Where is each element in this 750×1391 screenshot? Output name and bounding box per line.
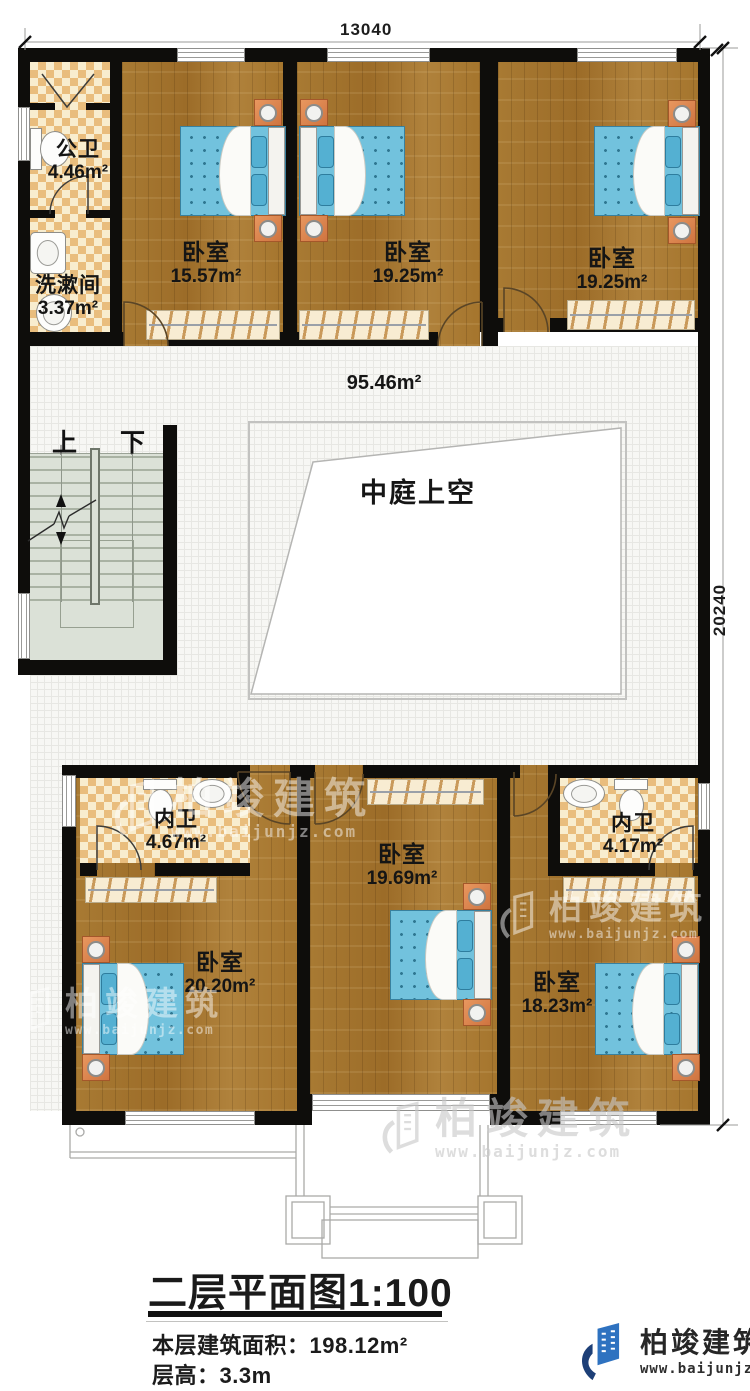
nightstand (82, 1054, 110, 1081)
bed-pillow (101, 973, 117, 1005)
room-area: 15.57m² (171, 266, 242, 287)
title-underline-thin (146, 1321, 448, 1322)
courtyard-name: 中庭上空 (360, 478, 476, 508)
floor-area-label: 本层建筑面积： (152, 1333, 310, 1358)
wall-bed3-stub (498, 318, 504, 332)
bed-pillow (318, 174, 334, 206)
wall-bathbr-bottom-a (548, 863, 655, 876)
room-name: 公卫 (48, 138, 108, 162)
bed-bedroom-br (595, 963, 699, 1055)
room-label-bath-bl: 内卫 4.67m² (146, 808, 206, 853)
room-area: 3.37m² (35, 298, 101, 319)
bed-bedroom1 (180, 126, 286, 216)
wall-bath-bed1 (110, 62, 122, 346)
bed-pillow (664, 973, 680, 1005)
floor-height-value: 3.3m (220, 1363, 272, 1388)
wall-bed2-corridor-stub (482, 332, 498, 346)
bed-pillow (665, 136, 681, 168)
room-label-bedroom-2: 卧室 19.25m² (373, 240, 444, 287)
watermark-url: www.baijunjz.com (435, 1144, 639, 1160)
bed-bedroom-bl (82, 963, 184, 1055)
stair-handrail (90, 448, 100, 605)
wall-stair-right (163, 425, 177, 675)
wall-bath-stub1r (86, 103, 110, 110)
floor-plan-page: 公卫 4.46m² 洗漱间 3.37m² 卧室 15.57m² 卧室 19.25… (0, 0, 750, 1391)
bed-pillow (665, 174, 681, 206)
bed-blanket (219, 126, 251, 216)
room-label-bedroom-bm: 卧室 19.69m² (367, 842, 438, 889)
bed-pillow (101, 1013, 117, 1045)
dimension-top: 13040 (340, 20, 392, 40)
courtyard-frame (248, 421, 627, 700)
room-area: 20.20m² (185, 976, 256, 997)
wall-bathbr-left (548, 765, 560, 876)
brand-logo-icon (576, 1320, 634, 1384)
bed-pillow (251, 136, 267, 168)
wall-bathbl-bottom-a (80, 863, 97, 876)
wall-bband-a (62, 765, 237, 778)
room-area: 19.25m² (577, 272, 648, 293)
window-right-bathbr (698, 783, 710, 830)
wardrobe-bedroom2 (299, 310, 429, 340)
bed-blanket (425, 910, 457, 1000)
floor-height-line: 层高：3.3m (152, 1358, 272, 1390)
sink-br (563, 779, 605, 808)
wall-washroom-corridor (30, 332, 124, 346)
window-left-stairs (18, 593, 30, 659)
window-bottom-right (560, 1111, 657, 1125)
room-name: 卧室 (367, 842, 438, 868)
floor-area-value: 198.12m² (310, 1333, 408, 1358)
bed-headboard (474, 911, 491, 999)
room-label-bath-br: 内卫 4.17m² (603, 812, 663, 857)
stairs-down-label: 下 (120, 423, 145, 459)
room-name: 内卫 (146, 808, 206, 832)
nightstand (672, 936, 700, 963)
wall-bm-br (497, 765, 510, 1111)
bed-blanket (632, 963, 664, 1055)
courtyard-label: 中庭上空 (360, 478, 476, 508)
wall-stair-bottom (18, 660, 177, 675)
room-name: 卧室 (185, 950, 256, 976)
room-name: 卧室 (522, 970, 593, 996)
room-area: 19.25m² (373, 266, 444, 287)
wall-bband-c (363, 765, 497, 778)
bed-blanket (117, 963, 149, 1055)
brand-logo: 柏竣建筑 www.baijunjz.com (576, 1320, 750, 1384)
room-label-washroom: 洗漱间 3.37m² (35, 274, 101, 319)
floor-area-line: 本层建筑面积：198.12m² (152, 1328, 408, 1360)
nightstand (82, 936, 110, 963)
room-label-bedroom-3: 卧室 19.25m² (577, 246, 648, 293)
bed-pillow (664, 1013, 680, 1045)
wardrobe-bedroom3 (567, 300, 695, 330)
dimension-right: 20240 (710, 580, 730, 640)
window-top-1 (177, 48, 245, 62)
wall-bath-stub2r (86, 210, 110, 218)
room-name: 卧室 (373, 240, 444, 266)
bed-pillow (251, 174, 267, 206)
room-name: 卧室 (171, 240, 242, 266)
window-top-2 (327, 48, 430, 62)
bed-blanket (334, 126, 366, 216)
nightstand (668, 217, 696, 244)
room-label-bedroom-br: 卧室 18.23m² (522, 970, 593, 1017)
wall-bband-e (556, 765, 710, 778)
stairs-up-label: 上 (52, 423, 77, 459)
room-name: 卧室 (577, 246, 648, 272)
wall-bottom-stub-r (490, 1094, 510, 1111)
title-underline (148, 1311, 442, 1317)
plan-title: 二层平面图1:100 (148, 1262, 453, 1318)
bed-headboard (681, 964, 698, 1054)
bed-headboard (83, 964, 100, 1054)
room-label-bedroom-bl: 卧室 20.20m² (185, 950, 256, 997)
room-area: 4.46m² (48, 162, 108, 183)
nightstand (672, 1054, 700, 1081)
window-bband-left (62, 775, 76, 827)
bed-bedroom3 (594, 126, 700, 216)
wardrobe-bedroom1 (146, 310, 280, 340)
window-bottom-middle (312, 1094, 490, 1111)
bed-headboard (300, 127, 317, 215)
bed-pillow (457, 920, 473, 952)
wall-bottom-stub-l (297, 1094, 312, 1125)
bed-pillow (318, 136, 334, 168)
nightstand (300, 99, 328, 126)
wall-bl-bm (297, 765, 310, 1111)
room-label-bedroom-1: 卧室 15.57m² (171, 240, 242, 287)
wardrobe-bedroom-bl (85, 877, 217, 903)
room-name: 洗漱间 (35, 274, 101, 298)
corridor-area-value: 95.46m² (347, 372, 422, 394)
window-top-3 (577, 48, 677, 62)
nightstand (463, 999, 491, 1026)
nightstand (254, 99, 282, 126)
window-left-bath (18, 107, 30, 161)
wall-bath-stub1l (30, 103, 55, 110)
brand-url: www.baijunjz.com (640, 1362, 750, 1376)
room-area: 19.69m² (367, 868, 438, 889)
wall-bathbl-stub (237, 765, 250, 807)
corridor-area-label: 95.46m² (347, 372, 422, 394)
wall-right (698, 62, 710, 1125)
room-name: 内卫 (603, 812, 663, 836)
wall-bath-stub2l (30, 210, 55, 218)
bed-headboard (682, 127, 699, 215)
bed-blanket (633, 126, 665, 216)
wardrobe-bedroom-br (563, 877, 695, 903)
nightstand (463, 883, 491, 910)
bed-headboard (268, 127, 285, 215)
wall-bathbl-bottom-b (155, 863, 250, 876)
floor-height-label: 层高： (152, 1363, 220, 1388)
room-area: 4.17m² (603, 836, 663, 857)
brand-name: 柏竣建筑 (640, 1329, 750, 1357)
nightstand (254, 215, 282, 242)
room-area: 4.67m² (146, 832, 206, 853)
room-label-public-bath: 公卫 4.46m² (48, 138, 108, 183)
bed-pillow (457, 958, 473, 990)
wall-bathbr-bottom-b (693, 863, 710, 876)
bed-bedroom-bm (390, 910, 492, 1000)
washing-machine-icon (30, 232, 66, 274)
bed-bedroom2 (299, 126, 405, 216)
sink-bl (192, 779, 232, 808)
wall-bed2-bed3 (480, 48, 498, 332)
nightstand (300, 215, 328, 242)
wardrobe-bedroom-bm (367, 779, 484, 805)
room-area: 18.23m² (522, 996, 593, 1017)
nightstand (668, 100, 696, 127)
window-bottom-left (125, 1111, 255, 1125)
